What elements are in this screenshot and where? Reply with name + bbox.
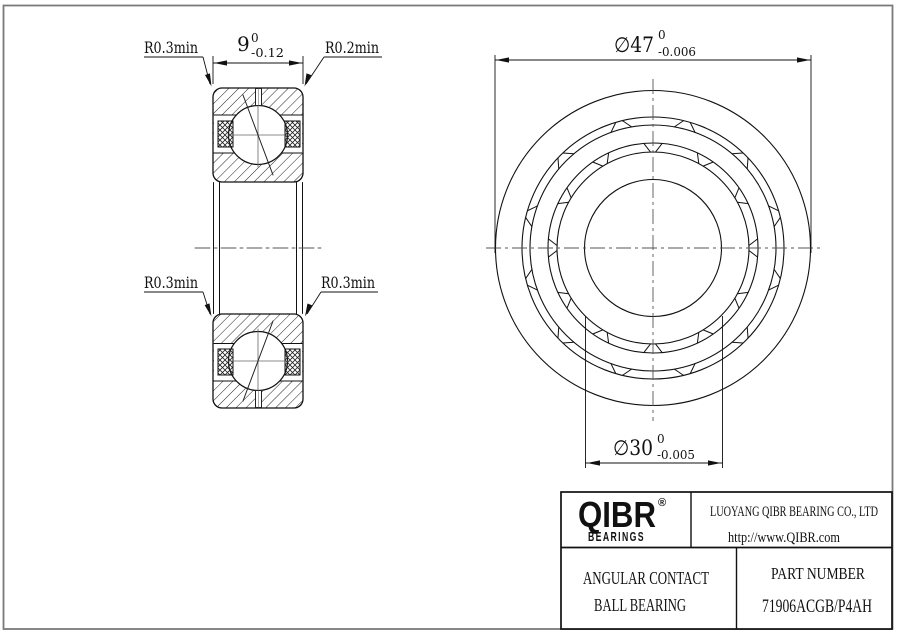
part-number-value: 71906ACGB/P4AH bbox=[762, 597, 872, 617]
product-name-line2: BALL BEARING bbox=[594, 595, 686, 615]
width-dim-value: 9 bbox=[237, 32, 250, 56]
registered-mark-icon: ® bbox=[658, 497, 666, 509]
bore-dim-upper-tol: 0 bbox=[657, 432, 665, 446]
od-dim-upper-tol: 0 bbox=[658, 28, 666, 42]
radius-callout-top-right: R0.2min bbox=[325, 38, 379, 57]
width-dim-lower-tol: -0.12 bbox=[251, 46, 284, 60]
cage-section bbox=[218, 121, 233, 147]
section-bottom-half bbox=[213, 314, 303, 408]
part-number-label: PART NUMBER bbox=[771, 564, 866, 583]
front-view bbox=[486, 79, 821, 421]
radius-callout-top-left: R0.3min bbox=[144, 38, 198, 57]
cage-section bbox=[285, 121, 300, 147]
od-dim-value: ∅47 bbox=[614, 33, 654, 57]
company-name: LUOYANG QIBR BEARING CO., LTD bbox=[710, 504, 878, 520]
bearing-drawing: R0.3min R0.2min R0.3min R0.3min 9 0 -0.1… bbox=[0, 0, 900, 636]
title-block: QIBR ® BEARINGS LUOYANG QIBR BEARING CO.… bbox=[561, 492, 892, 629]
radius-callout-mid-right: R0.3min bbox=[321, 273, 375, 292]
brand-subtitle: BEARINGS bbox=[588, 530, 645, 544]
cage-section bbox=[218, 349, 233, 375]
cage-section bbox=[285, 349, 300, 375]
drawing-sheet: R0.3min R0.2min R0.3min R0.3min 9 0 -0.1… bbox=[0, 0, 900, 636]
bore-dim-value: ∅30 bbox=[613, 436, 653, 460]
brand-name: QIBR bbox=[578, 494, 656, 535]
width-dim-upper-tol: 0 bbox=[251, 31, 259, 45]
radius-callout-mid-left: R0.3min bbox=[144, 273, 198, 292]
od-dim-lower-tol: -0.006 bbox=[658, 45, 696, 59]
bore-dim-lower-tol: -0.005 bbox=[657, 448, 695, 462]
section-view bbox=[195, 88, 321, 408]
product-name-line1: ANGULAR CONTACT bbox=[583, 568, 709, 588]
section-top-half bbox=[213, 88, 303, 182]
website-url: http://www.QIBR.com bbox=[728, 530, 840, 546]
